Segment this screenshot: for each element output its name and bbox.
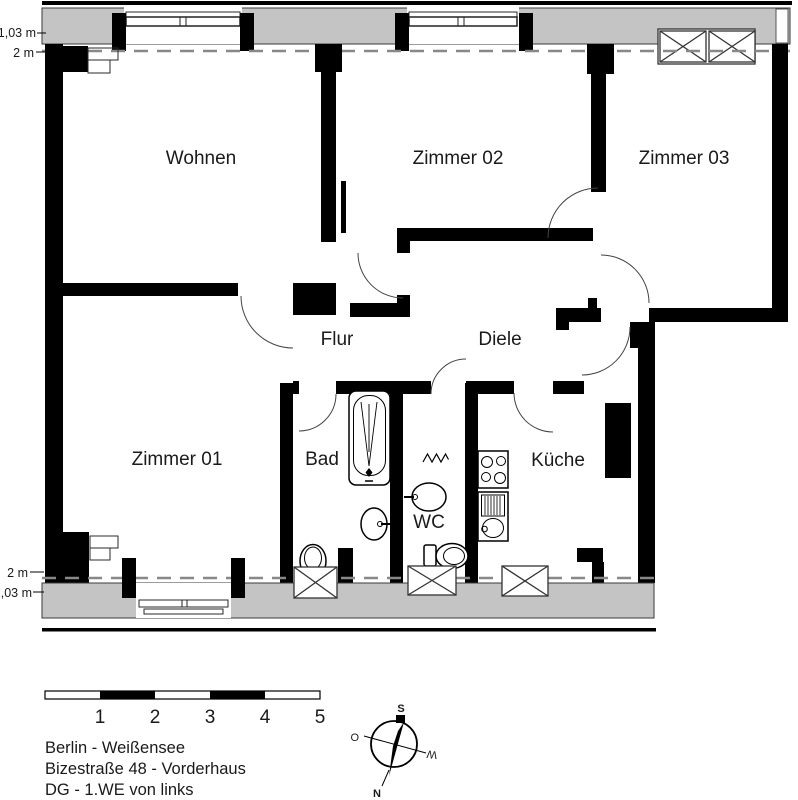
room-label-zimmer03: Zimmer 03: [639, 148, 730, 169]
roof-window-kueche-icon: [502, 566, 548, 596]
wall-step-br2: [592, 562, 604, 583]
label-2m-top: 2 m: [13, 46, 34, 60]
wall-chimney-kueche: [605, 403, 631, 478]
wall-flur-block: [293, 283, 336, 315]
top-roof-band: [42, 1, 792, 64]
window-zimmer01-icon: [122, 558, 245, 618]
address-line-3: DG - 1.WE von links: [45, 781, 194, 799]
compass-west-label: W: [426, 747, 438, 760]
address-line-2: Bizestraße 48 - Vorderhaus: [45, 760, 246, 778]
roof-edge-line: [42, 1, 792, 5]
wall-z02-z03: [591, 44, 606, 192]
top-measurements: 1,03 m 2 m: [0, 26, 46, 60]
scale-label-2: 2: [150, 707, 161, 728]
wall-wohnen-z02: [321, 44, 336, 242]
scale-label-3: 3: [205, 707, 216, 728]
wall-right-outer: [772, 44, 788, 322]
compass-needle-tip: [396, 715, 405, 723]
compass-north-label: N: [373, 788, 381, 800]
address-block: Berlin - Weißensee Bizestraße 48 - Vorde…: [45, 739, 246, 799]
door-wc: [431, 359, 466, 394]
compass-east-label: O: [350, 732, 359, 744]
wall-z03-south-step: [556, 308, 569, 330]
roof-window-zimmer03-icon: [658, 29, 755, 64]
wall-z02-stub: [397, 228, 410, 253]
wall-step-topleft: [63, 46, 88, 72]
roof-window-wc-icon: [408, 566, 456, 595]
scale-label-5: 5: [315, 707, 326, 728]
eave-edge-line: [42, 628, 656, 632]
label-103m-bottom: 1,03 m: [0, 586, 32, 600]
wall-flur-south-east: [350, 303, 403, 317]
room-label-bad: Bad: [305, 449, 339, 470]
compass-rose: S O W N: [350, 703, 437, 800]
band-right-notch: [776, 9, 788, 43]
room-label-zimmer01: Zimmer 01: [132, 449, 223, 470]
door-bad: [299, 394, 336, 431]
bottom-measurements: 2 m 1,03 m: [0, 566, 44, 600]
wall-z02-south: [410, 228, 593, 241]
scale-label-4: 4: [260, 707, 271, 728]
radiator-zigzag-icon: [423, 454, 449, 462]
door-zimmer03: [601, 255, 649, 303]
wall-step-bottomleft: [63, 532, 89, 583]
floor-plan-drawing: 1,03 m 2 m: [0, 0, 798, 800]
room-label-zimmer02: Zimmer 02: [413, 148, 504, 169]
sink-wc-icon: [404, 483, 446, 511]
label-103m-top: 1,03 m: [0, 26, 36, 40]
roof-window-bad-icon: [294, 567, 337, 598]
stove-icon: [478, 451, 508, 488]
door-kueche-lobby: [582, 327, 630, 375]
door-zimmer01: [241, 296, 293, 348]
wall-wohnen-south: [45, 283, 238, 296]
wall-step-br1: [577, 548, 603, 562]
room-label-wohnen: Wohnen: [166, 148, 236, 169]
wall-bad-wc: [390, 383, 403, 583]
compass-needle: [389, 722, 404, 776]
room-label-diele: Diele: [478, 329, 521, 350]
room-label-kueche: Küche: [531, 450, 585, 471]
room-label-wc: WC: [413, 512, 445, 533]
wall-z03-south-b: [649, 308, 788, 322]
compass-south-label: S: [397, 703, 404, 715]
floor-plan-page: 1,03 m 2 m: [0, 0, 798, 800]
toilet-wc-icon: [424, 544, 468, 569]
step-outlines: [88, 48, 118, 560]
address-line-1: Berlin - Weißensee: [45, 739, 185, 757]
door-kueche: [514, 393, 553, 432]
wall-bad-north-a: [293, 381, 299, 394]
wall-z03-door-jamb: [588, 298, 597, 308]
scale-label-1: 1: [95, 707, 106, 728]
door-flur-diele: [358, 253, 403, 298]
wall-z01-bad: [280, 383, 293, 583]
room-label-flur: Flur: [321, 329, 354, 350]
bathtub-icon: [349, 391, 390, 485]
kitchen-sink-icon: [478, 492, 508, 541]
wall-kueche-right: [638, 322, 655, 583]
wall-diele-south-b: [553, 381, 584, 394]
door-leaf-z02: [341, 181, 346, 233]
sink-bad-icon: [361, 508, 390, 540]
wall-left-outer: [45, 44, 63, 584]
label-2m-bottom: 2 m: [7, 566, 28, 580]
scale-bar: 1 2 3 4 5: [45, 691, 325, 728]
